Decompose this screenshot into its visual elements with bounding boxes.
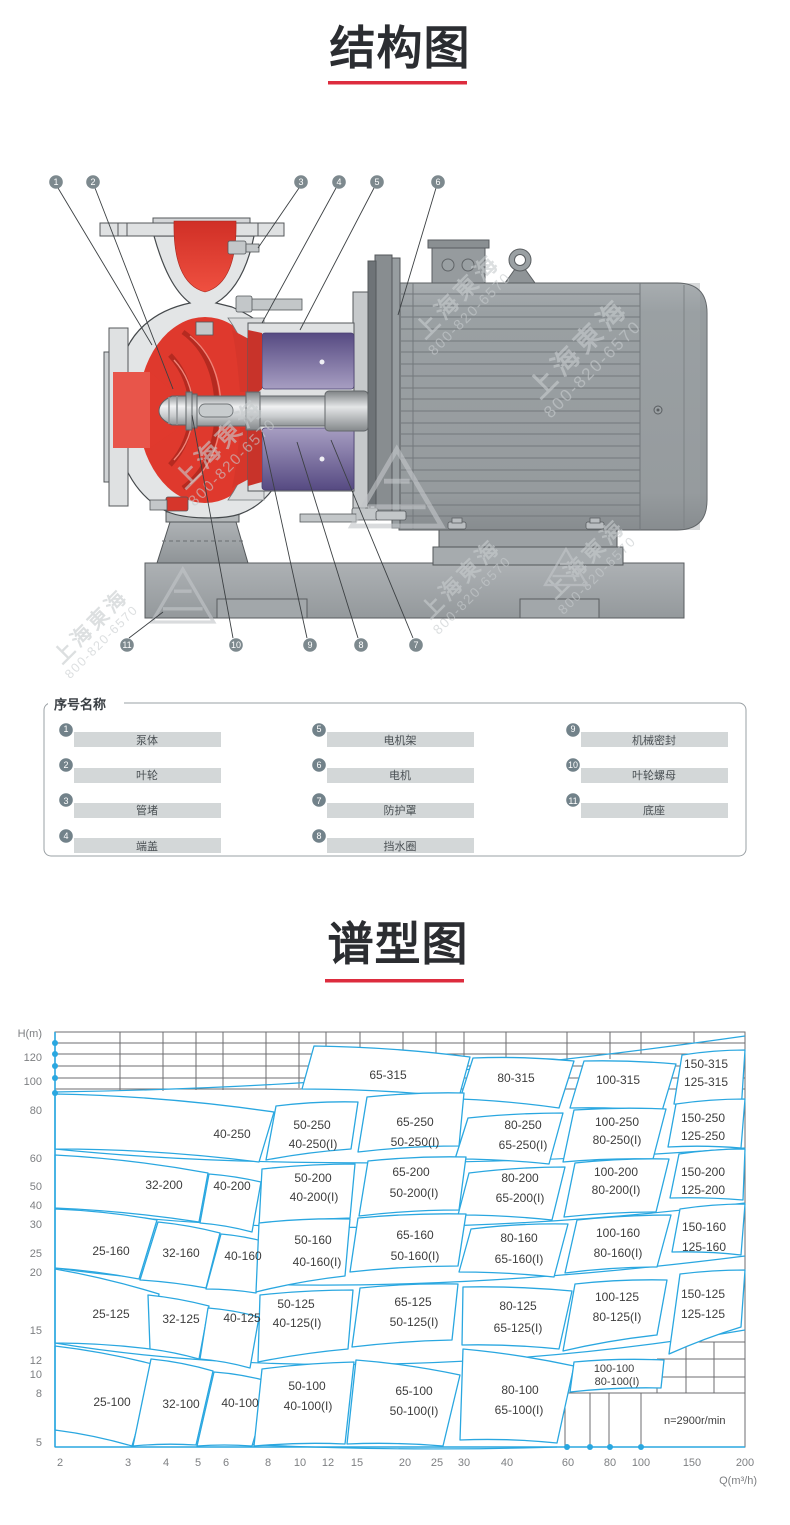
svg-text:1: 1 bbox=[53, 177, 58, 187]
svg-text:11: 11 bbox=[122, 640, 131, 650]
svg-text:32-125: 32-125 bbox=[162, 1312, 200, 1326]
svg-text:60: 60 bbox=[562, 1457, 574, 1469]
svg-text:6: 6 bbox=[435, 177, 440, 187]
svg-text:65-160(I): 65-160(I) bbox=[495, 1252, 544, 1266]
svg-text:谱型图: 谱型图 bbox=[328, 918, 469, 970]
svg-text:5: 5 bbox=[195, 1457, 201, 1469]
svg-text:120: 120 bbox=[24, 1052, 42, 1064]
svg-text:100-100: 100-100 bbox=[594, 1363, 634, 1375]
svg-text:40: 40 bbox=[501, 1457, 513, 1469]
svg-text:20: 20 bbox=[30, 1267, 42, 1279]
svg-text:3: 3 bbox=[125, 1457, 131, 1469]
svg-text:挡水圈: 挡水圈 bbox=[384, 839, 417, 853]
svg-text:65-125(I): 65-125(I) bbox=[494, 1321, 543, 1335]
svg-text:32-100: 32-100 bbox=[162, 1397, 200, 1411]
svg-text:150-200: 150-200 bbox=[681, 1165, 725, 1179]
svg-text:80: 80 bbox=[604, 1457, 616, 1469]
svg-text:80-315: 80-315 bbox=[497, 1071, 535, 1085]
svg-text:125-200: 125-200 bbox=[681, 1183, 725, 1197]
svg-text:65-100: 65-100 bbox=[395, 1384, 433, 1398]
svg-text:3: 3 bbox=[63, 796, 68, 806]
svg-text:65-100(I): 65-100(I) bbox=[495, 1403, 544, 1417]
svg-text:n=2900r/min: n=2900r/min bbox=[664, 1415, 725, 1427]
svg-text:泵体: 泵体 bbox=[136, 733, 158, 747]
svg-text:40-200(I): 40-200(I) bbox=[290, 1190, 339, 1204]
svg-text:50: 50 bbox=[30, 1181, 42, 1193]
svg-text:叶轮: 叶轮 bbox=[136, 768, 158, 782]
svg-text:100: 100 bbox=[24, 1076, 42, 1088]
svg-text:50-125(I): 50-125(I) bbox=[390, 1315, 439, 1329]
svg-text:50-100: 50-100 bbox=[288, 1379, 326, 1393]
svg-text:15: 15 bbox=[351, 1457, 363, 1469]
svg-text:100-160: 100-160 bbox=[596, 1226, 640, 1240]
svg-text:6: 6 bbox=[316, 760, 321, 770]
svg-text:125-250: 125-250 bbox=[681, 1129, 725, 1143]
svg-text:11: 11 bbox=[568, 796, 577, 806]
svg-text:结构图: 结构图 bbox=[330, 22, 471, 74]
svg-text:80-100(I): 80-100(I) bbox=[595, 1376, 640, 1388]
svg-text:12: 12 bbox=[322, 1457, 334, 1469]
svg-text:5: 5 bbox=[36, 1437, 42, 1449]
svg-text:12: 12 bbox=[30, 1355, 42, 1367]
svg-text:32-200: 32-200 bbox=[145, 1178, 183, 1192]
svg-text:100: 100 bbox=[632, 1457, 650, 1469]
svg-text:125-160: 125-160 bbox=[682, 1240, 726, 1254]
svg-text:150-125: 150-125 bbox=[681, 1287, 725, 1301]
svg-text:4: 4 bbox=[63, 831, 68, 841]
svg-text:50-125: 50-125 bbox=[277, 1297, 315, 1311]
svg-text:4: 4 bbox=[163, 1457, 169, 1469]
svg-text:125-315: 125-315 bbox=[684, 1075, 728, 1089]
svg-text:100-315: 100-315 bbox=[596, 1073, 640, 1087]
svg-text:40-200: 40-200 bbox=[213, 1179, 251, 1193]
svg-text:9: 9 bbox=[307, 640, 312, 650]
svg-text:80-250: 80-250 bbox=[504, 1118, 542, 1132]
svg-text:机械密封: 机械密封 bbox=[632, 733, 676, 747]
svg-text:50-100(I): 50-100(I) bbox=[390, 1404, 439, 1418]
svg-text:40-125(I): 40-125(I) bbox=[273, 1316, 322, 1330]
svg-text:Q(m³/h): Q(m³/h) bbox=[719, 1475, 757, 1487]
svg-text:叶轮螺母: 叶轮螺母 bbox=[632, 768, 676, 782]
svg-text:40-125: 40-125 bbox=[223, 1311, 261, 1325]
svg-text:50-250: 50-250 bbox=[293, 1118, 331, 1132]
svg-text:40-160: 40-160 bbox=[224, 1249, 262, 1263]
svg-text:60: 60 bbox=[30, 1153, 42, 1165]
svg-text:40-160(I): 40-160(I) bbox=[293, 1255, 342, 1269]
svg-text:30: 30 bbox=[30, 1219, 42, 1231]
svg-text:80-200: 80-200 bbox=[501, 1171, 539, 1185]
svg-text:40-250(I): 40-250(I) bbox=[289, 1137, 338, 1151]
svg-text:80: 80 bbox=[30, 1105, 42, 1117]
svg-text:7: 7 bbox=[413, 640, 418, 650]
svg-text:40-250: 40-250 bbox=[213, 1127, 251, 1141]
svg-text:125-125: 125-125 bbox=[681, 1307, 725, 1321]
svg-text:10: 10 bbox=[294, 1457, 306, 1469]
svg-text:100-250: 100-250 bbox=[595, 1115, 639, 1129]
svg-text:管堵: 管堵 bbox=[136, 803, 158, 817]
svg-text:65-200(I): 65-200(I) bbox=[496, 1191, 545, 1205]
svg-text:50-250(I): 50-250(I) bbox=[391, 1135, 440, 1149]
svg-text:9: 9 bbox=[570, 724, 575, 734]
svg-text:65-250(I): 65-250(I) bbox=[499, 1138, 548, 1152]
svg-text:25-125: 25-125 bbox=[92, 1307, 130, 1321]
svg-text:65-125: 65-125 bbox=[394, 1295, 432, 1309]
svg-text:150-315: 150-315 bbox=[684, 1057, 728, 1071]
svg-text:防护罩: 防护罩 bbox=[384, 803, 417, 817]
svg-text:10: 10 bbox=[568, 760, 578, 770]
svg-text:80-200(I): 80-200(I) bbox=[592, 1183, 641, 1197]
svg-text:25-100: 25-100 bbox=[93, 1395, 131, 1409]
svg-text:3: 3 bbox=[298, 177, 303, 187]
svg-text:10: 10 bbox=[30, 1369, 42, 1381]
svg-text:100-200: 100-200 bbox=[594, 1165, 638, 1179]
svg-text:4: 4 bbox=[336, 177, 341, 187]
svg-text:2: 2 bbox=[90, 177, 95, 187]
svg-text:2: 2 bbox=[63, 760, 68, 770]
svg-text:20: 20 bbox=[399, 1457, 411, 1469]
svg-text:150-160: 150-160 bbox=[682, 1220, 726, 1234]
svg-text:50-160: 50-160 bbox=[294, 1233, 332, 1247]
svg-text:80-125: 80-125 bbox=[499, 1299, 537, 1313]
svg-text:80-250(I): 80-250(I) bbox=[593, 1133, 642, 1147]
svg-text:80-100: 80-100 bbox=[501, 1383, 539, 1397]
svg-text:65-160: 65-160 bbox=[396, 1228, 434, 1242]
svg-text:32-160: 32-160 bbox=[162, 1246, 200, 1260]
svg-text:25: 25 bbox=[431, 1457, 443, 1469]
svg-text:200: 200 bbox=[736, 1457, 754, 1469]
svg-text:8: 8 bbox=[316, 831, 321, 841]
svg-text:底座: 底座 bbox=[643, 803, 665, 817]
svg-text:15: 15 bbox=[30, 1325, 42, 1337]
svg-text:50-200(I): 50-200(I) bbox=[390, 1186, 439, 1200]
svg-text:30: 30 bbox=[458, 1457, 470, 1469]
svg-text:50-160(I): 50-160(I) bbox=[391, 1249, 440, 1263]
svg-text:7: 7 bbox=[316, 796, 321, 806]
svg-text:40-100: 40-100 bbox=[221, 1396, 259, 1410]
svg-text:25-160: 25-160 bbox=[92, 1244, 130, 1258]
svg-text:8: 8 bbox=[265, 1457, 271, 1469]
svg-text:序号名称: 序号名称 bbox=[54, 697, 106, 712]
svg-text:8: 8 bbox=[358, 640, 363, 650]
svg-text:150: 150 bbox=[683, 1457, 701, 1469]
svg-text:5: 5 bbox=[316, 724, 321, 734]
svg-text:50-200: 50-200 bbox=[294, 1171, 332, 1185]
svg-text:1: 1 bbox=[63, 724, 68, 734]
svg-text:65-315: 65-315 bbox=[369, 1068, 407, 1082]
svg-text:100-125: 100-125 bbox=[595, 1290, 639, 1304]
svg-text:80-125(I): 80-125(I) bbox=[593, 1310, 642, 1324]
svg-text:65-200: 65-200 bbox=[392, 1165, 430, 1179]
svg-text:端盖: 端盖 bbox=[136, 839, 158, 853]
svg-text:80-160: 80-160 bbox=[500, 1231, 538, 1245]
svg-text:40-100(I): 40-100(I) bbox=[284, 1399, 333, 1413]
svg-text:8: 8 bbox=[36, 1388, 42, 1400]
svg-text:40: 40 bbox=[30, 1200, 42, 1212]
svg-text:10: 10 bbox=[231, 640, 241, 650]
svg-text:5: 5 bbox=[374, 177, 379, 187]
svg-text:80-160(I): 80-160(I) bbox=[594, 1246, 643, 1260]
svg-text:6: 6 bbox=[223, 1457, 229, 1469]
svg-text:2: 2 bbox=[57, 1457, 63, 1469]
svg-text:25: 25 bbox=[30, 1248, 42, 1260]
svg-text:H(m): H(m) bbox=[18, 1028, 42, 1040]
svg-text:150-250: 150-250 bbox=[681, 1111, 725, 1125]
svg-text:65-250: 65-250 bbox=[396, 1115, 434, 1129]
svg-text:电机架: 电机架 bbox=[384, 733, 417, 747]
svg-text:电机: 电机 bbox=[389, 768, 411, 782]
